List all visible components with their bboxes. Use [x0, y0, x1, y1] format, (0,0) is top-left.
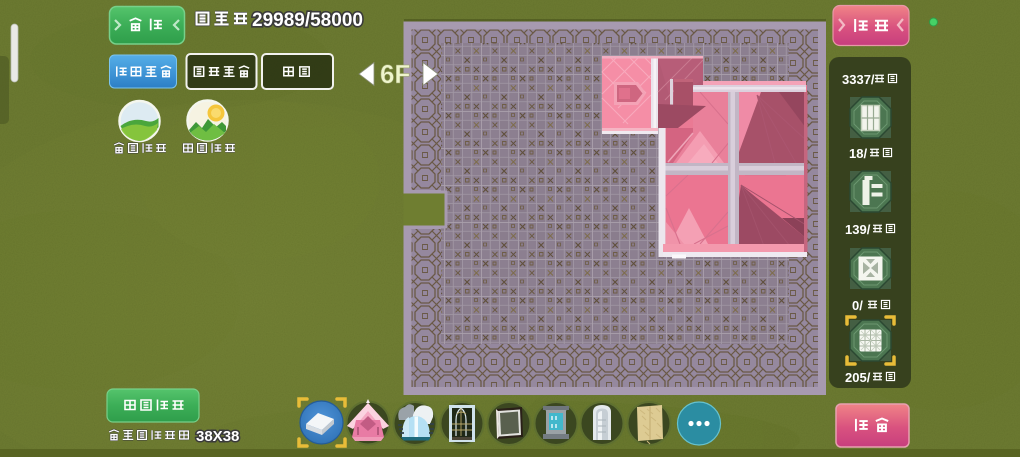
svg-text:139/: 139/: [845, 222, 871, 237]
svg-text:6F: 6F: [380, 59, 410, 89]
svg-text:38X38: 38X38: [196, 428, 239, 445]
svg-text:29989/58000: 29989/58000: [252, 10, 363, 31]
svg-text:18/: 18/: [849, 146, 867, 161]
svg-text:0/: 0/: [852, 298, 863, 313]
svg-text:205/: 205/: [845, 370, 871, 385]
svg-text:3337/: 3337/: [842, 72, 875, 87]
